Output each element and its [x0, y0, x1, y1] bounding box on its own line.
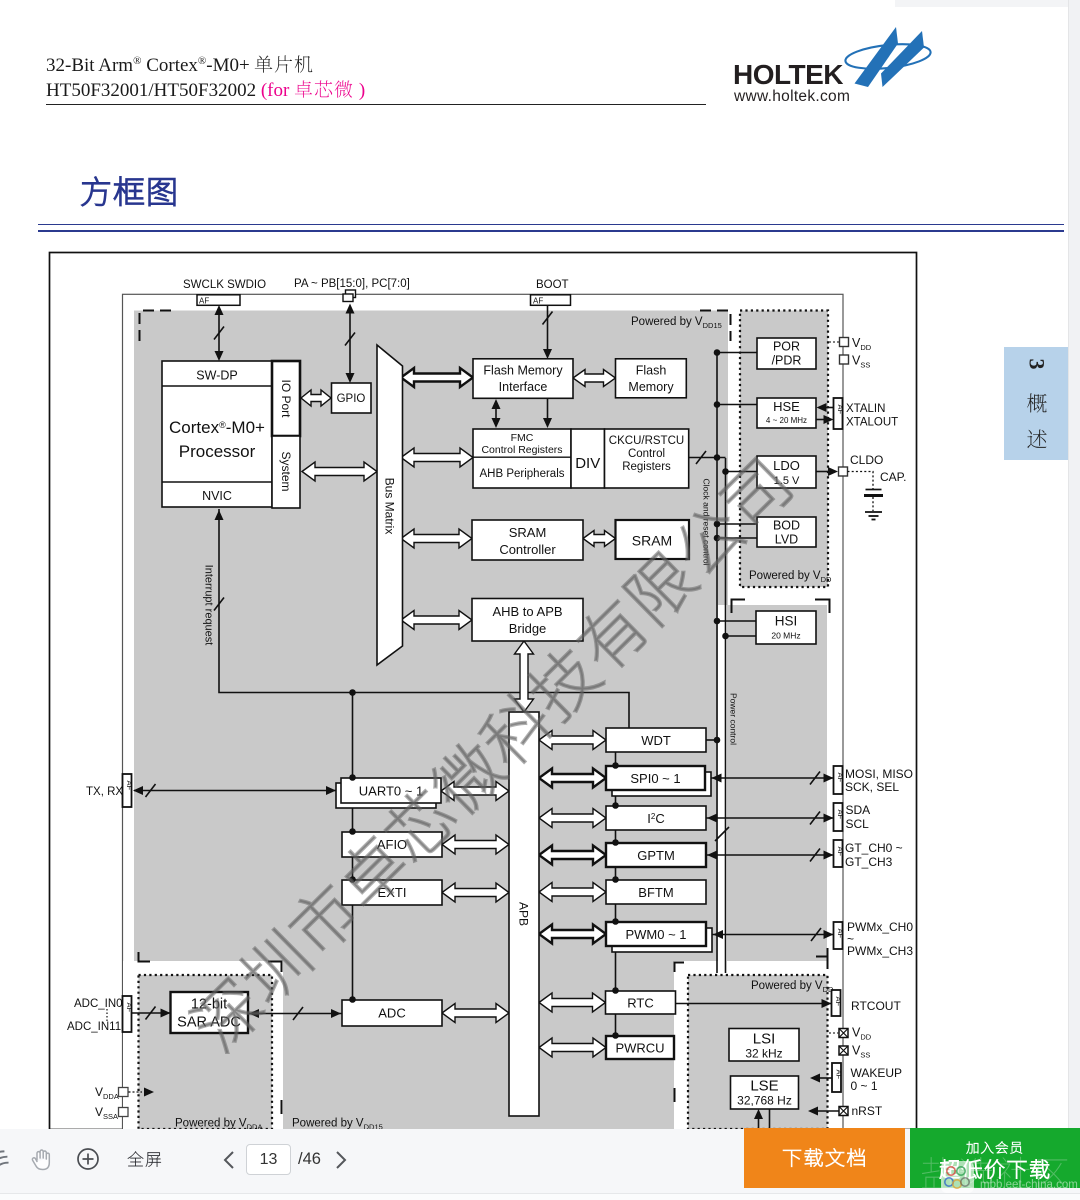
svg-text:Bus Matrix: Bus Matrix [383, 478, 397, 535]
svg-text:PWMx_CH3: PWMx_CH3 [847, 944, 913, 958]
svg-text:AF: AF [836, 847, 845, 857]
svg-text:32 kHz: 32 kHz [745, 1047, 782, 1061]
svg-text:Memory: Memory [628, 380, 674, 394]
svg-text:CLDO: CLDO [850, 453, 883, 467]
svg-text:3: 3 [1025, 359, 1050, 370]
svg-text:Cortex®-M0+: Cortex®-M0+ [169, 418, 265, 437]
svg-text:XTALOUT: XTALOUT [846, 417, 898, 429]
svg-text:Flash Memory: Flash Memory [483, 364, 563, 378]
svg-text:LSE: LSE [750, 1078, 778, 1095]
svg-text:AF: AF [125, 781, 134, 791]
svg-text:UART0 ~ 1: UART0 ~ 1 [359, 784, 423, 799]
svg-text:LDO: LDO [773, 458, 800, 473]
svg-text:4 ~ 20 MHz: 4 ~ 20 MHz [766, 416, 807, 425]
svg-text:SWCLK SWDIO: SWCLK SWDIO [183, 279, 266, 291]
svg-text:SDA: SDA [846, 803, 871, 817]
svg-text:System: System [279, 451, 293, 491]
svg-text:HSE: HSE [773, 399, 800, 414]
svg-text:AF: AF [125, 1003, 134, 1013]
svg-text:GPIO: GPIO [337, 393, 366, 405]
svg-text:20 MHz: 20 MHz [771, 631, 800, 641]
svg-text:AF: AF [834, 997, 843, 1007]
svg-text:RTCOUT: RTCOUT [851, 999, 901, 1013]
svg-text:DIV: DIV [575, 455, 600, 472]
svg-text:AF: AF [836, 929, 845, 939]
svg-text:AF: AF [836, 810, 845, 820]
svg-text:PWRCU: PWRCU [615, 1041, 664, 1056]
svg-text:Powered by VDD: Powered by VDD [749, 570, 832, 584]
svg-text:AF: AF [199, 296, 209, 305]
svg-text:Interrupt request: Interrupt request [203, 565, 215, 646]
svg-text:AHB Peripherals: AHB Peripherals [479, 468, 564, 480]
svg-text:/PDR: /PDR [772, 354, 802, 368]
svg-text:APB: APB [517, 902, 531, 926]
svg-text:LVD: LVD [775, 533, 798, 547]
svg-text:POR: POR [773, 340, 800, 354]
svg-text:SCK, SEL: SCK, SEL [845, 780, 899, 794]
svg-text:CAP.: CAP. [880, 470, 906, 484]
svg-text:ADC: ADC [378, 1006, 405, 1021]
svg-text:IO Port: IO Port [279, 379, 293, 418]
svg-text:Control Registers: Control Registers [481, 444, 562, 456]
svg-text:BOOT: BOOT [536, 279, 569, 291]
svg-text:GT_CH0 ~: GT_CH0 ~ [845, 841, 903, 855]
svg-text:AF: AF [533, 296, 543, 305]
svg-text:SW-DP: SW-DP [196, 369, 237, 383]
svg-text:nRST: nRST [852, 1104, 883, 1118]
svg-text:CKCU/RSTCU: CKCU/RSTCU [609, 435, 684, 447]
svg-text:AHB to APB: AHB to APB [492, 604, 562, 619]
svg-text:Interface: Interface [499, 380, 548, 394]
svg-text:NVIC: NVIC [202, 489, 232, 503]
svg-text:Bridge: Bridge [509, 621, 547, 636]
svg-text:I2C: I2C [647, 811, 664, 826]
svg-text:ADC_IN0: ADC_IN0 [74, 998, 123, 1010]
svg-text:AF: AF [836, 773, 845, 783]
svg-text:SRAM: SRAM [632, 533, 672, 549]
svg-text:AF: AF [835, 1070, 844, 1080]
svg-text:BFTM: BFTM [638, 885, 673, 900]
svg-text:SCL: SCL [846, 817, 870, 831]
svg-text:Registers: Registers [622, 461, 671, 473]
svg-text:GT_CH3: GT_CH3 [845, 855, 893, 869]
svg-text:SRAM: SRAM [509, 525, 547, 540]
svg-text:MOSI, MISO: MOSI, MISO [845, 767, 913, 781]
svg-text:BOD: BOD [773, 519, 800, 533]
svg-text:GPTM: GPTM [637, 848, 675, 863]
svg-text:PA ~ PB[15:0], PC[7:0]: PA ~ PB[15:0], PC[7:0] [294, 278, 410, 290]
svg-text:RTC: RTC [627, 996, 653, 1011]
svg-text:FMC: FMC [511, 432, 534, 444]
svg-text:Power control: Power control [729, 693, 739, 745]
svg-text:32,768 Hz: 32,768 Hz [737, 1094, 792, 1108]
svg-text:Flash: Flash [636, 364, 667, 378]
svg-text:SPI0 ~ 1: SPI0 ~ 1 [630, 771, 680, 786]
svg-text:TX, RX: TX, RX [86, 786, 123, 798]
svg-text:XTALIN: XTALIN [846, 403, 885, 415]
svg-text:Control: Control [628, 448, 665, 460]
svg-text:Controller: Controller [499, 542, 556, 557]
svg-text:0 ~ 1: 0 ~ 1 [851, 1079, 878, 1093]
svg-text:ADC_IN11: ADC_IN11 [67, 1021, 121, 1033]
svg-text:Processor: Processor [179, 442, 256, 461]
svg-text:HSI: HSI [775, 614, 798, 629]
svg-text:AF: AF [836, 405, 845, 415]
svg-text:Powered by VDD: Powered by VDD [751, 980, 834, 994]
svg-text:WDT: WDT [641, 733, 671, 748]
svg-text:PWMx_CH0: PWMx_CH0 [847, 920, 913, 934]
svg-text:WAKEUP: WAKEUP [851, 1066, 903, 1080]
svg-text:LSI: LSI [753, 1031, 776, 1048]
svg-text:PWM0 ~ 1: PWM0 ~ 1 [625, 927, 686, 942]
